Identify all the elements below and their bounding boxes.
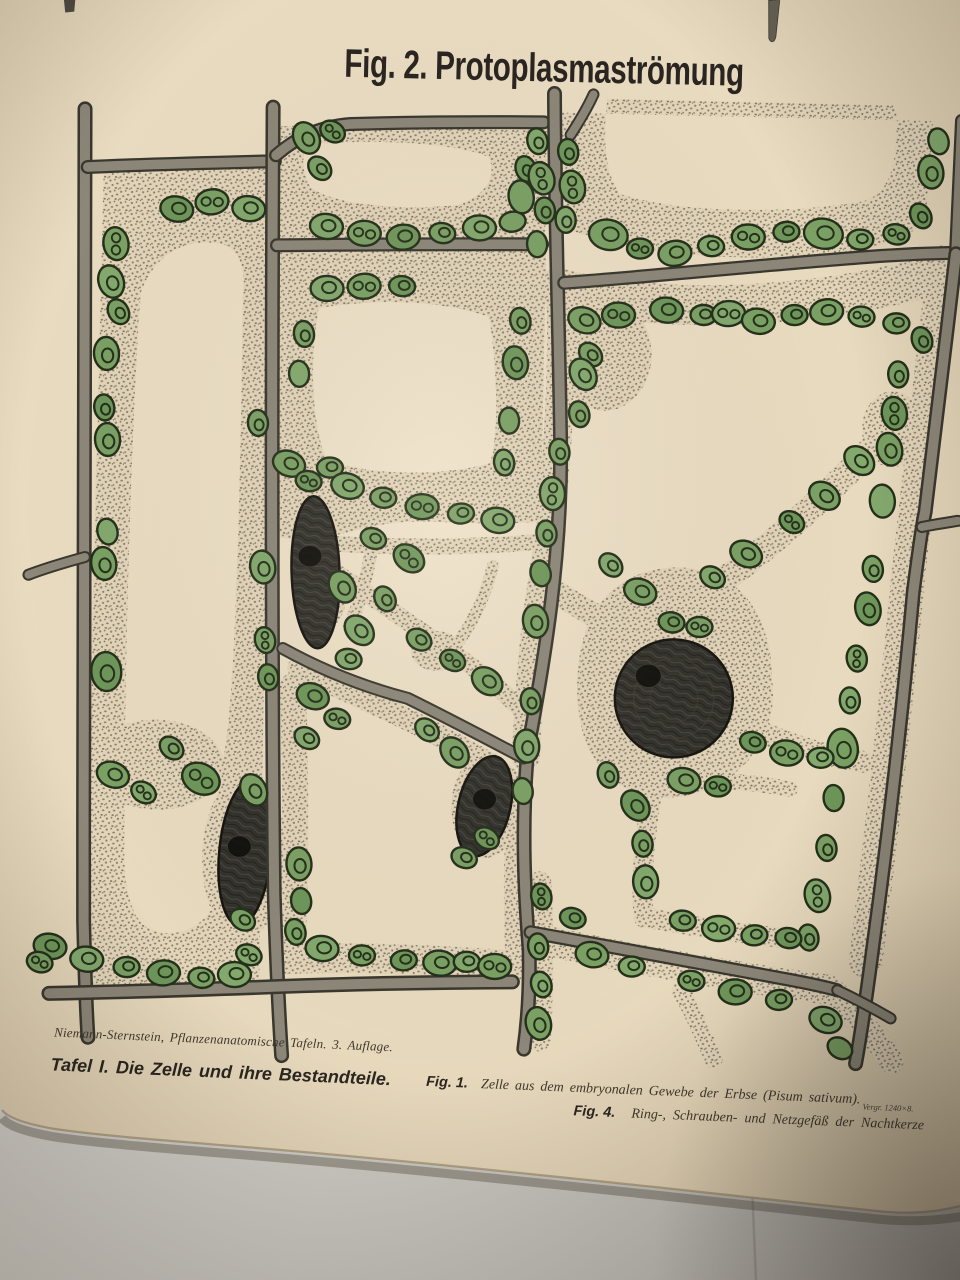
corner-shadow xyxy=(0,0,960,1280)
photo-of-wall-chart: Fig. 2. Protoplasmaströmung Niemann-Ster… xyxy=(0,0,960,1280)
wall-chart-scene: Fig. 2. Protoplasmaströmung Niemann-Ster… xyxy=(0,0,960,1280)
